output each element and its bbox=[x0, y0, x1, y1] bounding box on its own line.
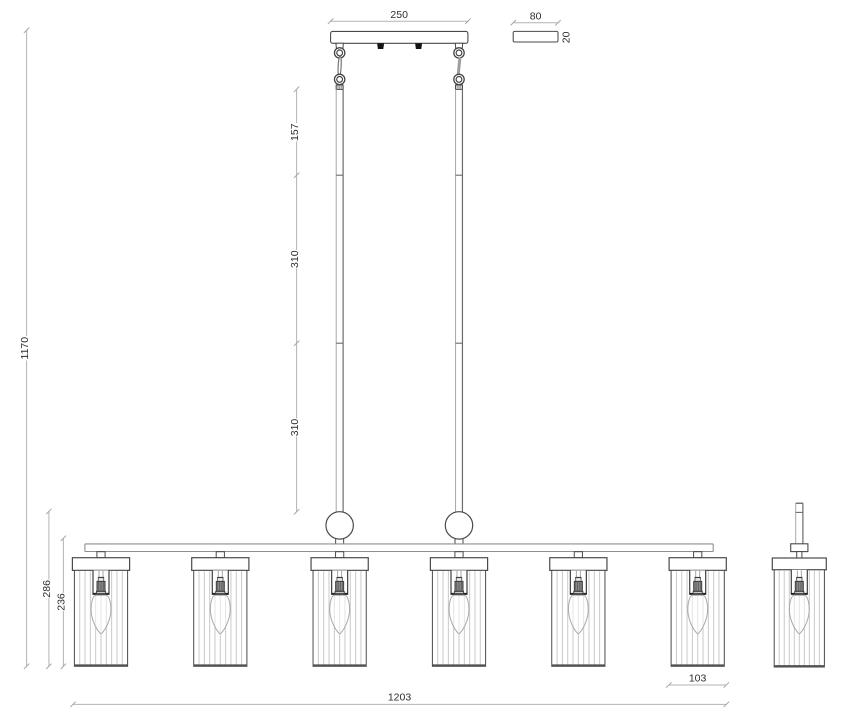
svg-text:1203: 1203 bbox=[388, 692, 412, 704]
svg-text:236: 236 bbox=[56, 593, 68, 611]
svg-text:250: 250 bbox=[390, 9, 408, 21]
svg-text:1170: 1170 bbox=[19, 337, 31, 360]
svg-text:103: 103 bbox=[689, 673, 707, 685]
svg-text:310: 310 bbox=[289, 250, 301, 268]
svg-text:310: 310 bbox=[289, 419, 301, 437]
svg-text:157: 157 bbox=[289, 123, 301, 141]
svg-text:286: 286 bbox=[41, 580, 53, 598]
svg-text:80: 80 bbox=[530, 11, 542, 23]
svg-text:20: 20 bbox=[561, 31, 573, 43]
